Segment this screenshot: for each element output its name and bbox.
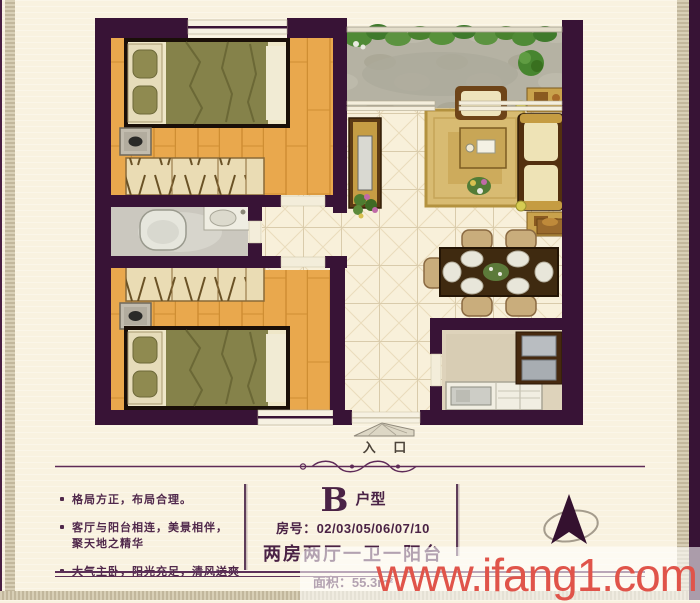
unit-letter: B <box>321 480 349 519</box>
wall-bedroom2-top-b <box>325 256 347 268</box>
unit-type-label: 户型 <box>355 491 385 508</box>
wall-bottom-c <box>420 410 562 425</box>
bedroom2-wardrobe <box>126 264 264 301</box>
frame-left-strip <box>5 0 15 600</box>
wall-kitchen-left-b <box>430 386 442 410</box>
watermark-band: www.ifang1.com <box>300 547 700 600</box>
bedroom1-nightstand <box>120 128 151 155</box>
door-bedroom2 <box>281 257 325 267</box>
door-bedroom1 <box>281 196 325 206</box>
frame-left-line <box>0 0 2 600</box>
table-centerpiece <box>483 263 509 281</box>
bedroom2-bed <box>126 328 288 408</box>
bedroom1-wardrobe <box>126 158 264 195</box>
floorplan-drawing <box>0 0 700 460</box>
rug-flowers <box>467 177 491 195</box>
bullet-text: 客厅与阳台相连，美景相伴， 聚天地之精华 <box>72 520 228 553</box>
wall-bedroom1-right <box>333 38 347 213</box>
wall-right <box>562 20 583 425</box>
wall-bottom-b <box>333 410 352 425</box>
wall-bedroom2-top-a <box>111 256 281 268</box>
bathroom-sink <box>204 206 250 230</box>
list-item: 格局方正，布局合理。 <box>60 492 246 509</box>
panel-separator-right <box>456 484 458 556</box>
ornamental-divider <box>0 455 700 481</box>
developer-logo <box>527 490 611 552</box>
floor-lamp-bottom <box>516 201 526 211</box>
floorplan-page: { "colors": { "wall": "#381336", "backgr… <box>0 0 700 600</box>
bullet-text: 格局方正，布局合理。 <box>72 492 192 509</box>
logo-arrow <box>551 494 587 544</box>
wall-left <box>95 18 111 425</box>
bullet-dot <box>60 497 64 501</box>
wall-bottom-a <box>95 410 258 425</box>
kitchen-counter <box>446 382 542 410</box>
room-numbers: 房号：02/03/05/06/07/10 <box>250 518 456 537</box>
wall-bedroom1-bottom-b <box>325 195 347 207</box>
bedroom1-bed <box>126 40 288 126</box>
tv-cabinet <box>349 118 381 208</box>
entry-awning-icon <box>354 423 414 436</box>
frame-right-strip <box>677 0 689 600</box>
sofa <box>518 114 564 210</box>
plant-stand <box>537 218 563 234</box>
wall-top-b <box>287 18 347 38</box>
unit-title: B户型 <box>250 484 456 516</box>
entry-label: 入 口 <box>348 437 428 456</box>
kitchen-appliances <box>516 332 562 384</box>
wall-bath-right-a <box>248 205 262 221</box>
coffee-table <box>460 128 506 168</box>
wall-kitchen-left-a <box>430 330 442 354</box>
door-bathroom <box>249 221 261 243</box>
wall-bedroom2-right <box>330 268 345 410</box>
toilet <box>140 210 186 250</box>
dining-table <box>440 248 558 296</box>
bedroom2-nightstand <box>120 303 151 329</box>
door-kitchen <box>431 354 441 386</box>
wall-top-a <box>95 18 188 38</box>
list-item: 客厅与阳台相连，美景相伴， 聚天地之精华 <box>60 520 246 553</box>
balcony-railing <box>347 27 562 32</box>
watermark-text: www.ifang1.com <box>376 547 697 600</box>
wall-kitchen-top <box>430 318 562 330</box>
kitchen-floor-mat <box>446 334 524 384</box>
bullet-dot <box>60 525 64 529</box>
frame-right-bar <box>689 0 700 600</box>
